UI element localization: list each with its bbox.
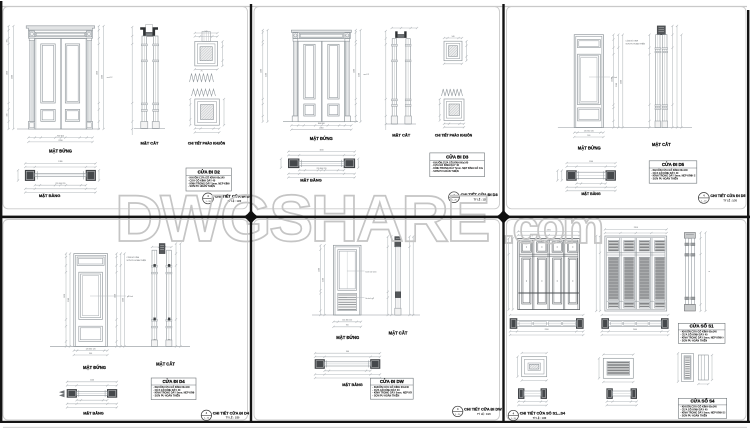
svg-text:1630: 1630: [7, 71, 9, 75]
svg-text:CỬA ĐI DW: CỬA ĐI DW: [380, 379, 405, 384]
svg-text:940: 940: [346, 351, 349, 353]
svg-text:- SƠN PU HOÀN THIỆN: - SƠN PU HOÀN THIỆN: [432, 170, 459, 173]
svg-text:220 900 220: 220 900 220: [55, 183, 65, 185]
svg-text:MẶT ĐỨNG: MẶT ĐỨNG: [310, 136, 333, 141]
svg-text:CHI TIẾT CỬA SỔ S1...S4: CHI TIẾT CỬA SỔ S1...S4: [520, 411, 566, 416]
svg-text:MẶT CẮT: MẶT CẮT: [156, 361, 175, 366]
svg-text:160: 160: [7, 40, 9, 43]
svg-text:900: 900: [587, 135, 590, 137]
svg-text:- SƠN PU HOÀN THIỆN: - SƠN PU HOÀN THIỆN: [372, 395, 399, 398]
svg-text:75: 75: [201, 71, 203, 73]
svg-text:2360: 2360: [11, 75, 13, 79]
svg-text:330: 330: [7, 114, 9, 117]
svg-text:120 660 120: 120 660 120: [86, 348, 96, 350]
svg-text:800 800: 800 800: [318, 123, 325, 125]
svg-text:700: 700: [346, 325, 349, 327]
svg-text:MẶT ĐỨNG: MẶT ĐỨNG: [336, 335, 359, 340]
svg-text:MẶT CẮT: MẶT CẮT: [652, 142, 671, 147]
svg-text:2000: 2000: [633, 329, 637, 331]
svg-text:kính mờ 5mm: kính mờ 5mm: [366, 271, 378, 273]
svg-text:2290: 2290: [58, 140, 62, 142]
svg-text:1180: 1180: [319, 149, 323, 151]
svg-text:CHI TIẾT CỬA ĐI D5: CHI TIẾT CỬA ĐI D5: [710, 193, 745, 198]
svg-text:1 - 20: 1 - 20: [455, 414, 461, 416]
svg-text:2160: 2160: [68, 298, 70, 302]
svg-text:MẶT BẰNG: MẶT BẰNG: [342, 382, 363, 387]
svg-text:2360: 2360: [621, 80, 623, 84]
svg-text:120 660 120: 120 660 120: [584, 130, 594, 132]
svg-text:MẶT BẰNG: MẶT BẰNG: [39, 193, 61, 198]
svg-text:1380: 1380: [58, 161, 62, 163]
svg-text:.com: .com: [502, 200, 602, 253]
svg-text:TỶ LỆ : 1/20: TỶ LỆ : 1/20: [477, 413, 491, 416]
svg-text:2160: 2160: [359, 73, 361, 77]
svg-text:140: 140: [452, 36, 455, 38]
svg-text:lá sách gỗ: lá sách gỗ: [366, 297, 374, 300]
svg-text:120 460 120: 120 460 120: [342, 320, 352, 322]
svg-text:CHI TIẾT PHÀO KHUÔN: CHI TIẾT PHÀO KHUÔN: [435, 133, 473, 138]
svg-text:CỬA SỔ S1: CỬA SỔ S1: [690, 324, 715, 329]
svg-text:CỬA SỔ S4: CỬA SỔ S4: [691, 399, 716, 404]
svg-text:- SƠN PU HOÀN THIỆN: - SƠN PU HOÀN THIỆN: [153, 395, 180, 398]
svg-text:MẶT CẮT: MẶT CẮT: [389, 330, 408, 335]
svg-text:1520: 1520: [611, 78, 613, 82]
svg-text:2360: 2360: [102, 75, 104, 79]
svg-text:2160: 2160: [266, 73, 268, 77]
svg-text:TỶ LỆ : 1/20: TỶ LỆ : 1/20: [723, 199, 737, 202]
svg-text:MẶT BẰNG: MẶT BẰNG: [581, 191, 601, 196]
svg-text:MẶT ĐỨNG: MẶT ĐỨNG: [83, 365, 106, 370]
svg-text:MẶT BẰNG: MẶT BẰNG: [83, 411, 104, 416]
svg-text:1140: 1140: [589, 161, 593, 163]
svg-text:2200: 2200: [545, 329, 549, 331]
svg-text:- SƠN PU HOÀN THIỆN: - SƠN PU HOÀN THIỆN: [651, 178, 678, 181]
svg-text:900: 900: [89, 353, 92, 355]
svg-text:CỬA GỖ KÍNH: CỬA GỖ KÍNH: [127, 256, 140, 259]
svg-text:CỬA GỖ KÍNH: CỬA GỖ KÍNH: [626, 40, 639, 43]
svg-text:1630: 1630: [97, 71, 99, 75]
svg-text:TỶ LỆ : 1/20: TỶ LỆ : 1/20: [226, 417, 240, 420]
svg-text:CỬA ĐI D5: CỬA ĐI D5: [662, 162, 685, 167]
svg-text:SƠN PU HOÀN THIỆN: SƠN PU HOÀN THIỆN: [127, 259, 147, 262]
svg-text:2160: 2160: [323, 278, 325, 282]
svg-text:CỬA ĐI D3: CỬA ĐI D3: [446, 154, 469, 159]
svg-text:1520: 1520: [64, 294, 66, 298]
svg-text:CHI TIẾT PHÀO KHUÔN: CHI TIẾT PHÀO KHUÔN: [188, 140, 226, 145]
svg-text:1500: 1500: [354, 69, 356, 73]
svg-text:900 900: 900 900: [57, 135, 64, 137]
svg-text:1 - 20: 1 - 20: [511, 418, 517, 420]
svg-text:1 - 20: 1 - 20: [701, 200, 707, 202]
svg-text:CỬA ĐI D4: CỬA ĐI D4: [162, 379, 185, 384]
svg-text:1260: 1260: [318, 268, 320, 272]
svg-text:2360: 2360: [122, 298, 124, 302]
svg-text:2160: 2160: [616, 83, 618, 87]
svg-text:2200: 2200: [634, 227, 638, 229]
svg-text:TỶ LỆ : 1/20: TỶ LỆ : 1/20: [533, 417, 547, 420]
svg-text:1520: 1520: [114, 294, 116, 298]
svg-text:gỗ kính: gỗ kính: [127, 295, 133, 298]
svg-text:MẶT CẮT: MẶT CẮT: [392, 133, 411, 138]
svg-text:CHI TIẾT CỬA ĐI DW: CHI TIẾT CỬA ĐI DW: [464, 406, 502, 411]
svg-text:- SƠN PU HOÀN THIỆN: - SƠN PU HOÀN THIỆN: [680, 415, 707, 418]
svg-text:- SƠN PU HOÀN THIỆN: - SƠN PU HOÀN THIỆN: [680, 340, 707, 343]
svg-text:2060: 2060: [319, 128, 323, 130]
svg-text:SƠN PU HOÀN THIỆN: SƠN PU HOÀN THIỆN: [626, 43, 646, 46]
svg-text:220 800 220: 220 800 220: [317, 168, 327, 170]
svg-text:m=2.2: m=2.2: [364, 74, 371, 76]
svg-text:1500: 1500: [261, 69, 263, 73]
svg-text:CHI TIẾT CỬA ĐI D4: CHI TIẾT CỬA ĐI D4: [213, 410, 250, 415]
svg-text:1 - 20: 1 - 20: [204, 418, 210, 420]
svg-text:MẶT CẮT: MẶT CẮT: [141, 140, 160, 145]
svg-text:CỬA ĐI D2: CỬA ĐI D2: [198, 169, 221, 174]
svg-text:m=2.2: m=2.2: [107, 77, 114, 79]
svg-text:1140: 1140: [90, 380, 94, 382]
svg-text:MẶT ĐỨNG: MẶT ĐỨNG: [578, 145, 601, 150]
svg-text:MẶT ĐỨNG: MẶT ĐỨNG: [49, 148, 72, 153]
